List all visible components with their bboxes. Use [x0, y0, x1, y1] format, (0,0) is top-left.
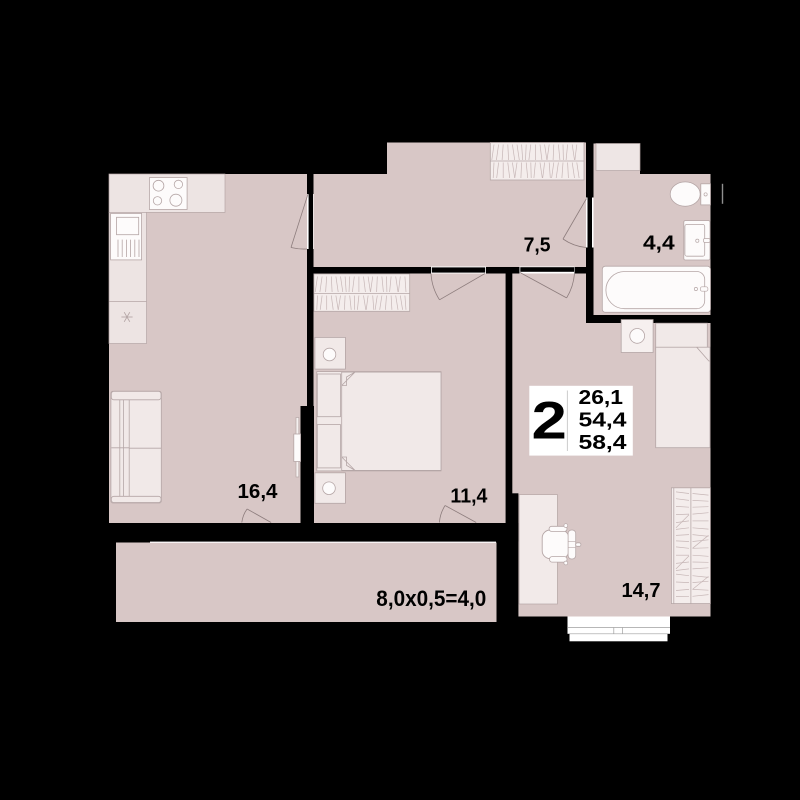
svg-text:2: 2: [532, 391, 567, 450]
svg-text:54,4: 54,4: [579, 410, 628, 432]
svg-text:14,7: 14,7: [622, 580, 661, 602]
svg-text:58,4: 58,4: [579, 432, 628, 454]
svg-text:11,4: 11,4: [450, 486, 488, 508]
svg-text:8,0x0,5=4,0: 8,0x0,5=4,0: [376, 586, 486, 611]
svg-text:16,4: 16,4: [238, 481, 279, 503]
svg-text:4,4: 4,4: [643, 233, 676, 255]
svg-text:7,5: 7,5: [524, 235, 551, 257]
svg-text:26,1: 26,1: [579, 387, 624, 409]
